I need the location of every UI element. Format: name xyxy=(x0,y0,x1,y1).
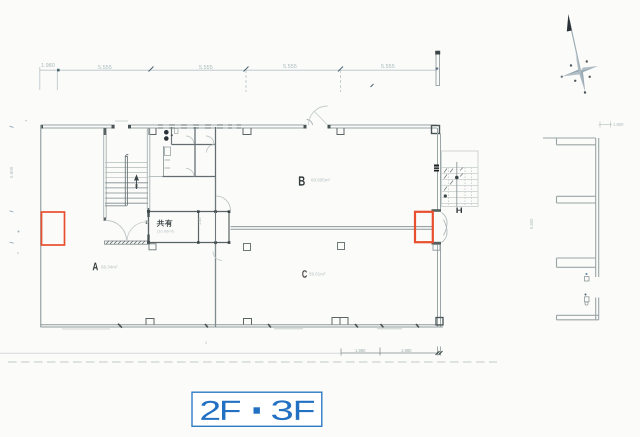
svg-text:5.555: 5.555 xyxy=(381,64,395,70)
svg-text:1.35: 1.35 xyxy=(198,218,202,225)
svg-text:1.980: 1.980 xyxy=(41,63,55,69)
svg-text:1.980: 1.980 xyxy=(401,348,412,353)
svg-text:5.800: 5.800 xyxy=(9,166,14,178)
svg-text:1.980: 1.980 xyxy=(355,348,366,353)
svg-text:5.555: 5.555 xyxy=(283,64,297,70)
svg-text:59.61m²: 59.61m² xyxy=(309,272,326,277)
svg-text:5.555: 5.555 xyxy=(199,65,213,71)
svg-text:5.555: 5.555 xyxy=(98,65,112,71)
svg-text:1.800: 1.800 xyxy=(613,122,624,127)
svg-text:(10.06m²): (10.06m²) xyxy=(157,229,175,234)
svg-text:5.800: 5.800 xyxy=(529,218,534,229)
svg-text:68.805m²: 68.805m² xyxy=(311,178,331,183)
svg-text:68.34m²: 68.34m² xyxy=(101,265,118,270)
